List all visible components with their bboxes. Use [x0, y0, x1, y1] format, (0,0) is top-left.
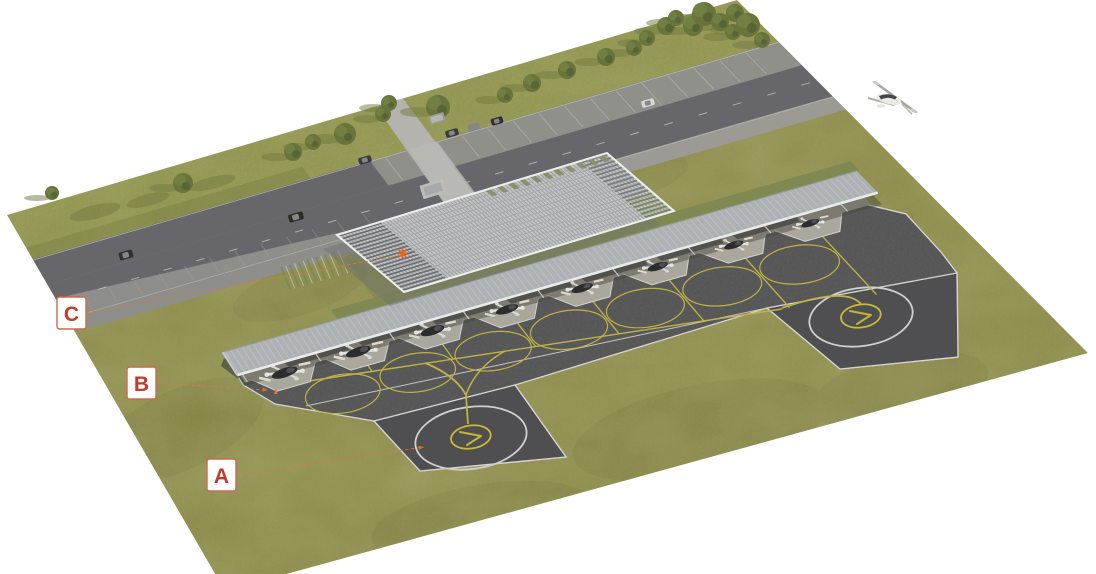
- svg-text:C: C: [64, 303, 79, 326]
- svg-text:B: B: [134, 373, 149, 396]
- svg-text:A: A: [214, 465, 229, 488]
